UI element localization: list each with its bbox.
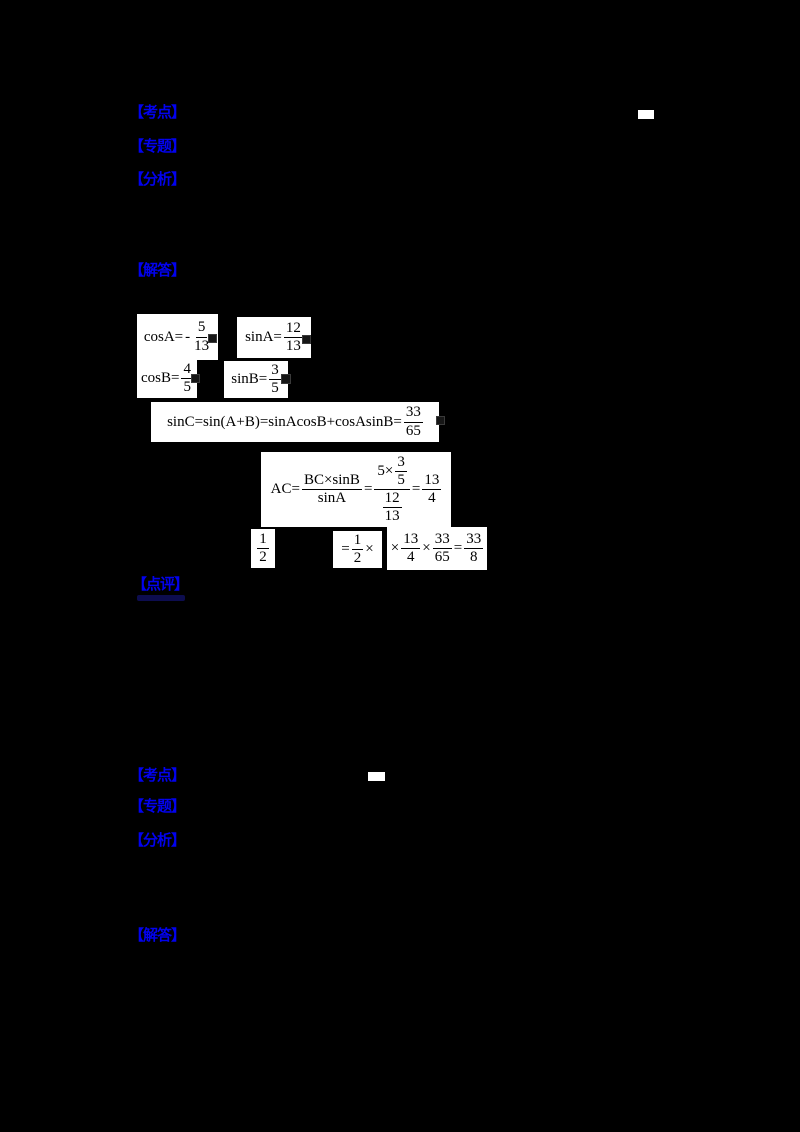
punctuation-square [303, 336, 310, 343]
punctuation-square [192, 375, 199, 382]
denominator: 65 [404, 423, 423, 440]
fraction: 134 [401, 531, 420, 567]
equals-sign: = [363, 481, 373, 498]
formula-sinB: sinB=35 [224, 361, 288, 398]
denominator: 13 [383, 508, 402, 525]
denominator: 4 [405, 549, 417, 566]
denominator: 13 [284, 338, 303, 355]
denominator: sinA [316, 490, 348, 507]
fraction: 3365 [433, 531, 452, 567]
formula-area-half: 12 [251, 529, 275, 568]
times-sign: × [421, 540, 431, 557]
formula-cosA: cosA=-513 [137, 314, 218, 360]
equals-sign: = [453, 540, 463, 557]
numerator: 5×35 [374, 454, 409, 491]
fraction: 12 [257, 531, 269, 567]
numerator: 1 [257, 531, 269, 549]
punctuation-square [437, 417, 444, 424]
label-zhuanti-q2: 【专题】 [129, 797, 185, 816]
punctuation-square [209, 335, 216, 342]
label-jieda-q2: 【解答】 [129, 926, 185, 945]
document-page: 【考点】 【专题】 【分析】 【解答】 cosA=-513 sinA=1213 … [0, 0, 800, 1132]
numerator: 33 [404, 404, 423, 422]
denominator: 2 [352, 550, 364, 567]
formula-sinA: sinA=1213 [237, 317, 311, 358]
label-fenxi-q1: 【分析】 [129, 170, 185, 189]
math-text: 5× [376, 463, 394, 480]
formula-area-half2: =12× [333, 531, 382, 568]
punctuation-square [282, 375, 290, 383]
math-text: sinB= [230, 371, 268, 388]
numerator: 3 [395, 454, 407, 472]
fraction: 338 [464, 531, 483, 567]
big-fraction: 5×351213 [374, 454, 409, 526]
formula-cosB: cosB=45 [137, 359, 197, 398]
math-text: sinC=sin(A+B)=sinAcosB+cosAsinB= [166, 414, 403, 431]
fraction: 35 [269, 362, 281, 398]
white-mark-2 [368, 772, 385, 781]
label-kaodian-q2: 【考点】 [129, 766, 185, 785]
denominator: 2 [257, 549, 269, 566]
denominator: 1213 [380, 490, 405, 526]
equals-sign: = [340, 541, 350, 558]
numerator: BC×sinB [302, 472, 362, 490]
formula-ac: AC=BC×sinBsinA=5×351213=134 [261, 452, 451, 527]
math-text: cosB= [140, 370, 180, 387]
numerator: 1 [352, 532, 364, 550]
white-mark-1 [638, 110, 654, 119]
nested-fraction: 1213 [383, 490, 402, 526]
numerator: 12 [383, 490, 402, 508]
equals-sign: = [411, 481, 421, 498]
times-sign: × [364, 541, 374, 558]
text-remnant-smudge [137, 595, 185, 601]
formula-sinC: sinC=sin(A+B)=sinAcosB+cosAsinB=3365 [151, 402, 439, 442]
fraction: 12 [352, 532, 364, 568]
nested-fraction: 35 [395, 454, 407, 490]
times-sign: × [390, 540, 400, 557]
fraction: 3365 [404, 404, 423, 440]
minus-sign: - [184, 329, 191, 346]
math-text: AC= [270, 481, 301, 498]
label-kaodian-q1: 【考点】 [129, 103, 185, 122]
label-fenxi-q2: 【分析】 [129, 831, 185, 850]
numerator: 13 [422, 472, 441, 490]
denominator: 5 [395, 472, 407, 489]
denominator: 4 [426, 490, 438, 507]
numerator: 33 [433, 531, 452, 549]
numerator: 33 [464, 531, 483, 549]
label-dianping-q1: 【点评】 [132, 575, 188, 594]
denominator: 8 [468, 549, 480, 566]
numerator: 5 [196, 319, 208, 337]
label-jieda-q1: 【解答】 [129, 261, 185, 280]
denominator: 65 [433, 549, 452, 566]
fraction: BC×sinBsinA [302, 472, 362, 508]
numerator: 12 [284, 320, 303, 338]
numerator: 3 [269, 362, 281, 380]
numerator: 13 [401, 531, 420, 549]
fraction: 134 [422, 472, 441, 508]
math-text: sinA= [244, 329, 283, 346]
math-text: cosA= [143, 329, 184, 346]
denominator: 5 [269, 380, 281, 397]
label-zhuanti-q1: 【专题】 [129, 137, 185, 156]
formula-area-tail: ×134×3365=338 [387, 527, 487, 570]
fraction: 1213 [284, 320, 303, 356]
